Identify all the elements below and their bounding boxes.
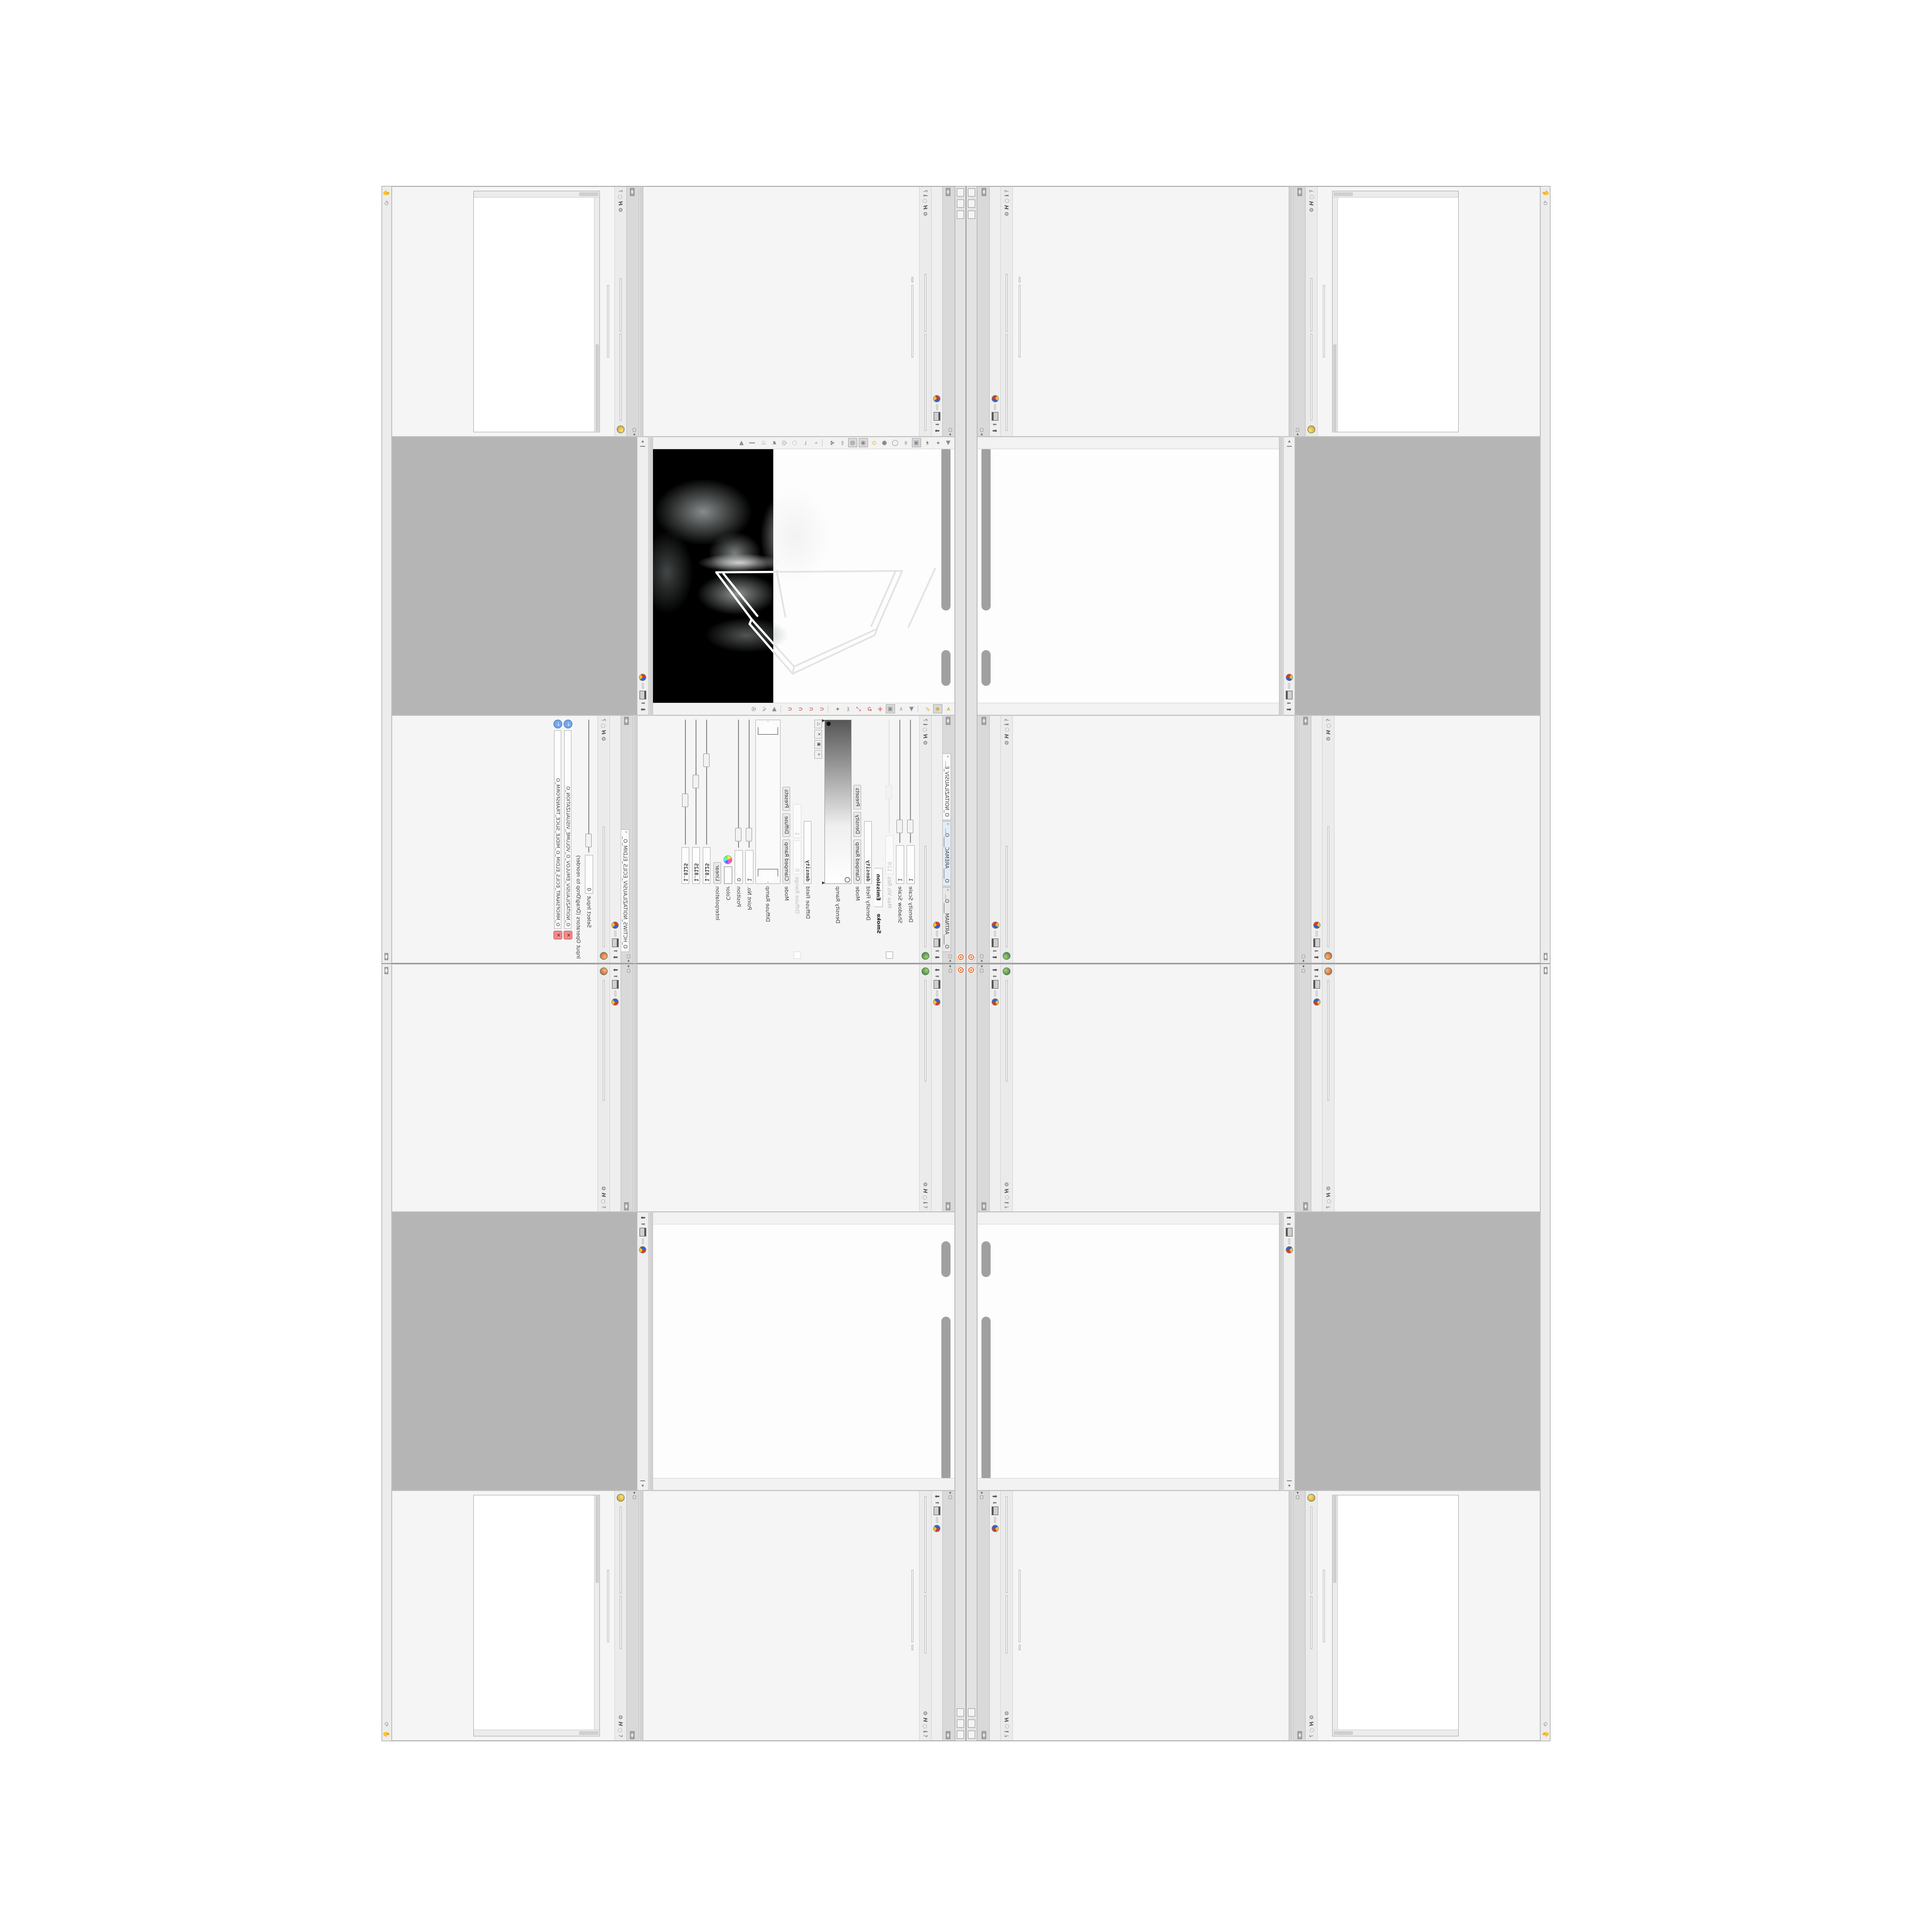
density-ramp-widget[interactable]: ▲▲: [824, 720, 852, 884]
text-tool-icon[interactable]: ▣: [886, 705, 895, 714]
slider[interactable]: [693, 720, 700, 845]
camera-lock-icon[interactable]: ▣: [912, 439, 921, 448]
help-icon[interactable]: ?: [923, 719, 929, 722]
breadcrumb-root[interactable]: [1316, 991, 1318, 996]
search-icon[interactable]: ◌: [1308, 195, 1315, 199]
vex-snippet-editor[interactable]: [1332, 191, 1459, 432]
pane-max-icon[interactable]: ▢: [980, 969, 984, 973]
tab-scroll-icon[interactable]: ◀▶: [624, 717, 629, 725]
nav-down-icon[interactable]: ⬇: [1286, 707, 1293, 712]
node-name-field[interactable]: [1327, 826, 1329, 947]
param-field[interactable]: 1: [907, 845, 915, 884]
projection-pill[interactable]: [981, 650, 991, 686]
view-toggle-icon[interactable]: ◉: [859, 439, 868, 448]
nav-up-icon[interactable]: ⬆: [1287, 1222, 1292, 1226]
node-name-field[interactable]: [924, 980, 926, 1081]
folder-tab[interactable]: Smoke: [874, 908, 883, 939]
tab-scroll-icon[interactable]: ◀▶: [624, 1202, 629, 1210]
pane-split-icon[interactable]: ▸: [980, 1492, 984, 1494]
search-icon[interactable]: ◌: [923, 199, 929, 203]
asset-path-field[interactable]: [620, 1596, 622, 1649]
input-operator-field[interactable]: O_MROFSNART_ECILS_ELDIM_O_MIDLE_SLICE_TR…: [554, 730, 562, 929]
minimize-button[interactable]: [957, 1708, 964, 1717]
tab-scroll-icon[interactable]: ◀▶: [946, 188, 951, 196]
gear-icon[interactable]: ⚙: [923, 740, 929, 745]
ring-icon[interactable]: ◯: [891, 439, 900, 448]
pane-max-icon[interactable]: ▢: [626, 969, 631, 973]
search-icon[interactable]: ◌: [601, 1199, 607, 1204]
search-icon[interactable]: ◌: [923, 1724, 929, 1729]
pane-split-icon[interactable]: ▸: [632, 1492, 637, 1494]
restore-button[interactable]: [968, 199, 975, 208]
input-operator-field[interactable]: O_NOITAZILAUSIV_EMULOV_O_VOLUME_VISUALIZ…: [565, 730, 572, 929]
snap-grid-icon[interactable]: ∩: [817, 705, 826, 714]
scale-icon[interactable]: ⤡: [854, 705, 863, 714]
sketch-icon[interactable]: ✍: [759, 705, 768, 714]
help-icon[interactable]: ?: [1004, 1206, 1010, 1208]
tab-scroll-icon[interactable]: ◀▶: [1303, 1202, 1308, 1210]
nav-down-icon[interactable]: ⬇: [612, 955, 619, 960]
asset-path-field[interactable]: [924, 274, 926, 332]
slider[interactable]: [897, 720, 904, 843]
nav-up-icon[interactable]: ⬆: [1314, 949, 1320, 953]
node-name-field[interactable]: [603, 826, 605, 947]
search-icon[interactable]: ◌: [1004, 199, 1010, 203]
tab-scroll-icon[interactable]: ◀▶: [1297, 188, 1302, 196]
search-icon[interactable]: ◌: [923, 1195, 929, 1200]
breadcrumb-root[interactable]: [994, 931, 996, 937]
minimize-button[interactable]: [957, 211, 964, 219]
asset-type-chip[interactable]: [912, 1645, 914, 1650]
code-hscrollbar[interactable]: [594, 197, 599, 432]
gear-icon[interactable]: ⚙: [1004, 1711, 1010, 1716]
nav-up-icon[interactable]: ⬆: [993, 1501, 998, 1505]
select-tool-icon[interactable]: ➤: [944, 705, 953, 714]
vex-snippet-editor[interactable]: [473, 191, 600, 432]
pane-splitter[interactable]: [634, 964, 637, 1212]
nav-down-icon[interactable]: ⬇: [612, 967, 619, 972]
info-icon[interactable]: ℹ: [1004, 1202, 1010, 1204]
pane-splitter[interactable]: [1279, 437, 1283, 715]
vex-snippet-editor[interactable]: [473, 1495, 600, 1736]
gear-icon[interactable]: ⚙: [1308, 1715, 1315, 1719]
help-icon[interactable]: ?: [923, 190, 929, 193]
breadcrumb-root[interactable]: [994, 991, 996, 996]
viewport-content[interactable]: [978, 449, 1279, 703]
pane-split-icon[interactable]: ▸: [1301, 959, 1306, 962]
nav-down-icon[interactable]: ⬇: [934, 955, 940, 960]
nav-up-icon[interactable]: ⬆: [640, 701, 646, 705]
nav-down-icon[interactable]: ⬇: [992, 955, 998, 960]
pane-splitter[interactable]: [639, 1491, 643, 1741]
param-field[interactable]: density: [865, 821, 872, 884]
node-name-field[interactable]: [1006, 846, 1008, 947]
recook-icon[interactable]: ⟳: [384, 200, 390, 205]
tab-scroll-icon[interactable]: ◀▶: [1303, 717, 1308, 725]
status-scroll-icon[interactable]: ◀▶: [385, 953, 389, 960]
slider[interactable]: [682, 720, 689, 845]
slider[interactable]: [704, 720, 710, 845]
tab-scroll-icon[interactable]: ◀▶: [630, 188, 635, 196]
tab-scroll-icon[interactable]: ◀▶: [981, 1731, 986, 1739]
code-vscrollbar[interactable]: [1333, 191, 1458, 198]
close-button[interactable]: [968, 1731, 975, 1739]
close-tab-icon[interactable]: ✕: [946, 889, 950, 892]
gear-icon[interactable]: ⚙: [1004, 1182, 1010, 1187]
pane-split-icon[interactable]: ▸: [948, 959, 952, 962]
gear-icon[interactable]: ⚙: [923, 1182, 929, 1187]
pane-max-icon[interactable]: ▢: [632, 428, 637, 432]
search-icon[interactable]: ◌: [1308, 1728, 1315, 1733]
asset-type-chip[interactable]: [1019, 1645, 1021, 1650]
help-icon[interactable]: ?: [1004, 1734, 1010, 1737]
tab-scroll-icon[interactable]: ◀▶: [1297, 1731, 1302, 1739]
asset-type-chip[interactable]: [1019, 277, 1021, 283]
help-icon[interactable]: ?: [1308, 190, 1315, 193]
code-hscrollbar[interactable]: [1333, 197, 1338, 432]
help-icon[interactable]: ?: [601, 1206, 607, 1208]
asset-name-value[interactable]: [1323, 1570, 1325, 1642]
pane-splitter[interactable]: [1289, 186, 1293, 437]
node-name-field[interactable]: [603, 980, 605, 1101]
breadcrumb-root[interactable]: [642, 683, 644, 689]
play-icon[interactable]: ▶: [770, 705, 779, 714]
pane-split-icon[interactable]: ▸: [948, 966, 952, 968]
param-field[interactable]: density: [804, 821, 812, 884]
breadcrumb-root[interactable]: [1288, 1238, 1290, 1244]
recook-icon[interactable]: ⟳: [1542, 200, 1549, 205]
tab-scroll-icon[interactable]: ◀▶: [981, 717, 986, 725]
breadcrumb-root[interactable]: [1316, 931, 1318, 937]
gear-icon[interactable]: ⚙: [601, 1186, 607, 1191]
leaf-icon[interactable]: ❧: [923, 439, 932, 448]
nav-up-icon[interactable]: ⬆: [613, 949, 618, 953]
node-name-field[interactable]: [1327, 980, 1329, 1101]
nav-up-icon[interactable]: ⬆: [1287, 701, 1292, 705]
pane-split-icon[interactable]: ▸: [980, 959, 984, 962]
ramp-edit-button[interactable]: +: [815, 750, 823, 759]
info-icon[interactable]: ℹ: [923, 724, 929, 725]
tab-scroll-icon[interactable]: ◀▶: [946, 1202, 951, 1210]
node-name-field[interactable]: [1310, 334, 1312, 421]
pane-max-icon[interactable]: ▢: [948, 969, 952, 973]
help-icon[interactable]: ?: [618, 190, 624, 193]
flag-icon[interactable]: ⚑: [769, 439, 778, 448]
secure-selection-icon[interactable]: ◆: [933, 705, 942, 714]
magnify-icon[interactable]: ◌: [790, 439, 799, 448]
memory-icon[interactable]: ✋: [1542, 1731, 1549, 1738]
param-field[interactable]: 0: [585, 855, 593, 894]
info-icon[interactable]: ℹ: [1004, 195, 1010, 197]
restore-button[interactable]: [957, 1719, 964, 1728]
nav-down-icon[interactable]: ⬇: [1286, 1215, 1293, 1220]
close-tab-icon[interactable]: ✕: [946, 823, 950, 825]
pane-max-icon[interactable]: ▢: [632, 1495, 637, 1500]
status-scroll-icon[interactable]: ◀▶: [1544, 967, 1548, 974]
tab-scroll-icon[interactable]: ◀▶: [946, 717, 951, 725]
asset-name-value[interactable]: [912, 1570, 914, 1642]
gear-icon[interactable]: ⚙: [923, 212, 929, 216]
paw-icon[interactable]: ☘: [827, 439, 836, 448]
hook-icon[interactable]: ⌐: [801, 439, 810, 448]
rotate-icon[interactable]: ↻: [865, 705, 874, 714]
slider[interactable]: [908, 720, 914, 843]
slider[interactable]: [886, 720, 893, 833]
viewport-content[interactable]: [978, 1224, 1279, 1478]
help-icon[interactable]: ?: [1325, 1206, 1332, 1208]
nav-up-icon[interactable]: ⬆: [993, 974, 998, 978]
pane-max-icon[interactable]: ▢: [1295, 428, 1300, 432]
pane-split-icon[interactable]: ▸: [948, 1492, 952, 1494]
pane-max-icon[interactable]: ▢: [948, 954, 952, 959]
breadcrumb-root[interactable]: [936, 1517, 938, 1523]
pane-max-icon[interactable]: ▢: [980, 1495, 984, 1500]
restore-button[interactable]: [968, 1719, 975, 1728]
asset-path-field[interactable]: [1310, 1596, 1312, 1649]
remove-input-button[interactable]: ✕: [554, 931, 562, 939]
code-vscrollbar[interactable]: [474, 191, 599, 198]
paint-select-icon[interactable]: ✎: [923, 705, 932, 714]
nav-down-icon[interactable]: ⬇: [992, 1494, 998, 1499]
remove-input-button[interactable]: ✕: [564, 931, 572, 939]
nav-down-icon[interactable]: ⬇: [934, 428, 940, 433]
asset-name-value[interactable]: [1019, 1570, 1021, 1642]
dropdown-chip[interactable]: Presets: [783, 787, 791, 811]
nav-up-icon[interactable]: ⬆: [935, 974, 940, 978]
nav-up-icon[interactable]: ⬆: [935, 949, 940, 953]
info-icon[interactable]: ℹ: [923, 1731, 929, 1733]
memory-icon[interactable]: ✋: [1542, 189, 1549, 197]
pane-menu-icon[interactable]: ▸: [1287, 1485, 1292, 1487]
param-field[interactable]: 0: [735, 850, 743, 884]
back-icon[interactable]: ◀: [907, 705, 916, 714]
help-icon[interactable]: ?: [1004, 719, 1010, 722]
ramp-edit-button[interactable]: ▣: [815, 740, 823, 749]
breadcrumb-root[interactable]: [1288, 683, 1290, 689]
node-name-field[interactable]: [924, 1496, 926, 1593]
dropdown-chip[interactable]: Linear: [714, 862, 722, 884]
dropdown-chip[interactable]: Clamped Ramp: [783, 839, 791, 884]
tab-scroll-icon[interactable]: ◀▶: [946, 1731, 951, 1739]
gear-icon[interactable]: ⚙: [1325, 1186, 1332, 1191]
status-scroll-icon[interactable]: ◀▶: [385, 967, 389, 974]
search-icon[interactable]: ◌: [601, 724, 607, 728]
dropdown-chip[interactable]: Presets: [854, 785, 862, 809]
pen-icon[interactable]: ✑: [838, 439, 847, 448]
snap-multi-icon[interactable]: ∩: [785, 705, 795, 714]
dropdown-chip[interactable]: Density: [854, 812, 862, 837]
status-scroll-icon[interactable]: ◀▶: [1544, 953, 1548, 960]
dropdown-chip[interactable]: Diffuse: [783, 813, 791, 837]
node-name-field[interactable]: [1310, 1506, 1312, 1593]
diffuse-ramp-widget[interactable]: [755, 720, 781, 884]
recook-icon[interactable]: ⟳: [1542, 1722, 1549, 1727]
pane-splitter[interactable]: [649, 1212, 653, 1491]
tab-scroll-icon[interactable]: ◀▶: [981, 188, 986, 196]
nav-up-icon[interactable]: ⬆: [993, 423, 998, 426]
breadcrumb-root[interactable]: [936, 404, 938, 410]
pane-menu-icon[interactable]: ▸: [640, 1485, 646, 1487]
info-icon[interactable]: ℹ: [923, 1202, 929, 1204]
nav-down-icon[interactable]: ⬇: [1313, 967, 1320, 972]
projection-pill[interactable]: [941, 650, 951, 686]
pane-splitter[interactable]: [1295, 715, 1298, 963]
param-field[interactable]: 1.8125: [693, 847, 700, 884]
asset-path-field[interactable]: [1006, 1595, 1008, 1653]
pin-icon[interactable]: ❙: [640, 1479, 646, 1483]
breadcrumb-root[interactable]: [994, 404, 996, 410]
help-icon[interactable]: ?: [923, 1734, 929, 1737]
node-name-field[interactable]: [620, 334, 622, 421]
code-hscrollbar[interactable]: [594, 1495, 599, 1730]
param-field[interactable]: 1.8125: [703, 847, 711, 884]
handles-icon[interactable]: ✦: [833, 705, 842, 714]
snap-point-icon[interactable]: ∩: [807, 705, 816, 714]
gear-icon[interactable]: ⚙: [601, 737, 607, 741]
more-icon[interactable]: ▶: [737, 439, 746, 448]
pane-splitter[interactable]: [639, 186, 643, 437]
restore-button[interactable]: [957, 199, 964, 208]
pane-max-icon[interactable]: ▢: [980, 954, 984, 959]
nav-down-icon[interactable]: ⬇: [639, 707, 646, 712]
minimize-button[interactable]: [968, 211, 975, 219]
pane-split-icon[interactable]: ▸: [948, 433, 952, 435]
color-swatch[interactable]: [724, 867, 732, 884]
viewport-content[interactable]: [653, 1224, 954, 1478]
gear-icon[interactable]: ⚙: [923, 1711, 929, 1716]
color-wheel-icon[interactable]: [724, 855, 733, 864]
gear-icon[interactable]: ⚙: [1004, 212, 1010, 216]
nav-up-icon[interactable]: ⬆: [640, 1222, 646, 1226]
nav-down-icon[interactable]: ⬇: [992, 967, 998, 972]
pane-menu-icon[interactable]: ▸: [640, 440, 646, 442]
param-field[interactable]: 0: [793, 840, 801, 874]
asset-name-value[interactable]: [1323, 285, 1325, 357]
param-field[interactable]: 1: [896, 845, 904, 884]
pane-splitter[interactable]: [1279, 1212, 1283, 1491]
translate-icon[interactable]: ✛: [875, 705, 884, 714]
pane-max-icon[interactable]: ▢: [1295, 1495, 1300, 1500]
asset-type-chip[interactable]: [912, 277, 914, 283]
close-tab-icon[interactable]: ✕: [624, 831, 628, 834]
pane-max-icon[interactable]: ▢: [948, 428, 952, 432]
breadcrumb-root[interactable]: [936, 931, 938, 937]
node-name-field[interactable]: [1006, 1496, 1008, 1593]
param-field[interactable]: 1.8125: [682, 847, 690, 884]
memory-icon[interactable]: ✋: [384, 1731, 390, 1738]
network-canvas[interactable]: [1295, 437, 1540, 715]
close-button[interactable]: [957, 188, 964, 197]
pane-max-icon[interactable]: ▢: [626, 954, 631, 959]
close-button[interactable]: [957, 1731, 964, 1739]
param-field[interactable]: 1: [793, 804, 801, 838]
param-field[interactable]: 1: [745, 850, 753, 884]
asset-name-value[interactable]: [608, 1570, 610, 1642]
pane-split-icon[interactable]: ▸: [1295, 1492, 1300, 1494]
help-icon[interactable]: ?: [1004, 190, 1010, 193]
bulb-off-icon[interactable]: ●: [880, 439, 889, 448]
network-canvas[interactable]: [392, 1212, 637, 1490]
reorder-input-button[interactable]: ←: [564, 720, 572, 728]
gear-icon[interactable]: ⚙: [618, 208, 624, 213]
camera-pill[interactable]: [941, 449, 951, 611]
node-name-field[interactable]: [1006, 334, 1008, 431]
flag2-icon[interactable]: ⚐: [758, 439, 767, 448]
arrow-tool-icon[interactable]: ➢: [896, 705, 906, 714]
search-icon[interactable]: ◌: [1004, 1195, 1010, 1200]
node-name-field[interactable]: [924, 334, 926, 431]
asset-name-value[interactable]: [912, 285, 914, 357]
nav-down-icon[interactable]: ⬇: [934, 1494, 940, 1499]
help-icon[interactable]: ?: [1325, 719, 1332, 722]
tab-scroll-icon[interactable]: ◀▶: [981, 1202, 986, 1210]
folder-tab[interactable]: Emission: [874, 868, 883, 907]
pin-icon[interactable]: ❙: [640, 444, 646, 448]
nav-down-icon[interactable]: ⬇: [934, 967, 940, 972]
pane-menu-icon[interactable]: ▸: [1287, 440, 1292, 442]
help-icon[interactable]: ?: [618, 1734, 624, 1737]
nav-up-icon[interactable]: ⬆: [993, 949, 998, 953]
back-icon[interactable]: ◀: [944, 439, 953, 448]
camera-pill[interactable]: [981, 449, 991, 611]
reorder-input-button[interactable]: ←: [554, 720, 562, 728]
pane-split-icon[interactable]: ▸: [980, 966, 984, 968]
pane-max-icon[interactable]: ▢: [980, 428, 984, 432]
memory-icon[interactable]: ✋: [384, 189, 390, 197]
nav-down-icon[interactable]: ⬇: [992, 428, 998, 433]
info-icon[interactable]: ℹ: [1004, 1731, 1010, 1733]
asset-path-field[interactable]: [620, 278, 622, 331]
network-canvas[interactable]: [392, 437, 637, 715]
diamond-icon[interactable]: ✦: [933, 439, 942, 448]
camera-pill[interactable]: [941, 1317, 951, 1478]
asset-path-field[interactable]: [924, 1595, 926, 1653]
nav-up-icon[interactable]: ⬆: [935, 423, 940, 426]
minimize-button[interactable]: [968, 1708, 975, 1717]
pane-split-icon[interactable]: ▸: [1301, 966, 1306, 968]
search-icon[interactable]: ◌: [1004, 1724, 1010, 1729]
viewport-content[interactable]: [653, 449, 954, 703]
pin-icon[interactable]: ❙: [1287, 444, 1292, 448]
gear-icon[interactable]: ⚙: [618, 1715, 624, 1719]
dropdown-chip[interactable]: Clamped Ramp: [854, 839, 862, 884]
gear-icon[interactable]: ⚙: [1004, 740, 1010, 745]
vex-snippet-editor[interactable]: [1332, 1495, 1459, 1736]
node-name-field[interactable]: [620, 1506, 622, 1593]
network-canvas[interactable]: [1295, 1212, 1540, 1490]
recook-icon[interactable]: ⟳: [384, 1722, 390, 1727]
search-icon[interactable]: ◌: [1004, 727, 1010, 732]
link-icon[interactable]: ∞: [901, 439, 910, 448]
tab-scroll-icon[interactable]: ◀▶: [630, 1731, 635, 1739]
info-icon[interactable]: ℹ: [923, 195, 929, 197]
pane-tab[interactable]: O____ARTNAM____O...✕: [943, 887, 951, 952]
pane-max-icon[interactable]: ▢: [1301, 954, 1306, 959]
pane-splitter[interactable]: [1295, 964, 1298, 1212]
pane-split-icon[interactable]: ▸: [980, 433, 984, 435]
checkbox[interactable]: [886, 952, 893, 959]
nav-up-icon[interactable]: ⬆: [613, 974, 618, 978]
pane-split-icon[interactable]: ▸: [626, 959, 631, 962]
breadcrumb-root[interactable]: [614, 931, 616, 937]
slider[interactable]: [746, 720, 753, 848]
search-icon[interactable]: ◌: [618, 195, 624, 199]
pane-split-icon[interactable]: ▸: [1295, 433, 1300, 435]
breadcrumb-root[interactable]: [936, 991, 938, 996]
asset-path-field[interactable]: [1310, 278, 1312, 331]
pane-splitter[interactable]: [1289, 1491, 1293, 1741]
search-icon[interactable]: ◌: [1325, 724, 1332, 728]
